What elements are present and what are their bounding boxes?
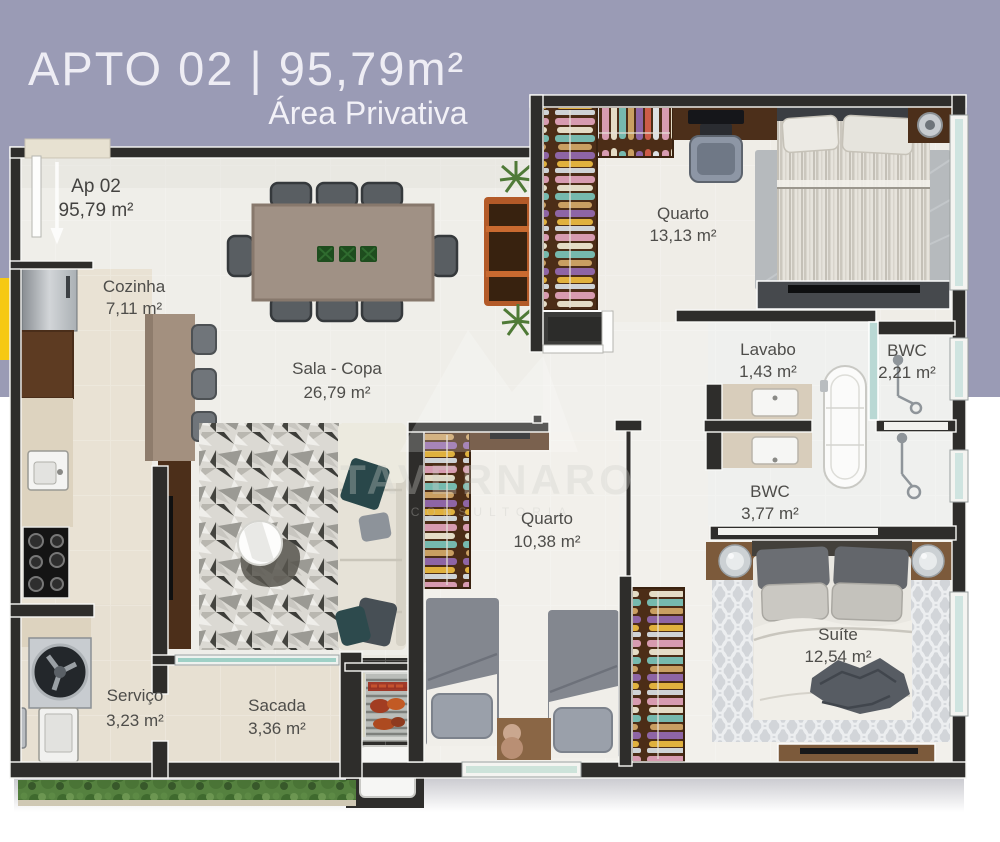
svg-text:Área Privativa: Área Privativa — [268, 95, 467, 131]
svg-text:3,77 m²: 3,77 m² — [741, 504, 799, 523]
svg-text:Sacada: Sacada — [248, 696, 306, 715]
svg-text:3,23 m²: 3,23 m² — [106, 711, 164, 730]
svg-text:1,43 m²: 1,43 m² — [739, 362, 797, 381]
svg-text:Cozinha: Cozinha — [103, 277, 166, 296]
svg-text:3,36 m²: 3,36 m² — [248, 719, 306, 738]
svg-text:Sala - Copa: Sala - Copa — [292, 359, 382, 378]
svg-text:TAVERNARO: TAVERNARO — [340, 456, 636, 503]
svg-text:Suíte: Suíte — [818, 625, 858, 644]
svg-text:13,13 m²: 13,13 m² — [649, 226, 716, 245]
svg-text:26,79 m²: 26,79 m² — [303, 383, 370, 402]
svg-text:BWC: BWC — [750, 482, 790, 501]
svg-text:10,38 m²: 10,38 m² — [513, 532, 580, 551]
svg-text:Lavabo: Lavabo — [740, 340, 796, 359]
svg-text:Quarto: Quarto — [657, 204, 709, 223]
svg-text:Serviço: Serviço — [107, 686, 164, 705]
svg-text:APTO 02 | 95,79m²: APTO 02 | 95,79m² — [28, 42, 465, 95]
svg-text:BWC: BWC — [887, 341, 927, 360]
svg-text:Quarto: Quarto — [521, 509, 573, 528]
svg-text:Ap 02: Ap 02 — [71, 176, 121, 197]
svg-text:95,79 m²: 95,79 m² — [59, 200, 134, 221]
svg-text:12,54 m²: 12,54 m² — [804, 647, 871, 666]
svg-text:7,11 m²: 7,11 m² — [106, 299, 163, 318]
svg-text:2,21 m²: 2,21 m² — [878, 363, 936, 382]
